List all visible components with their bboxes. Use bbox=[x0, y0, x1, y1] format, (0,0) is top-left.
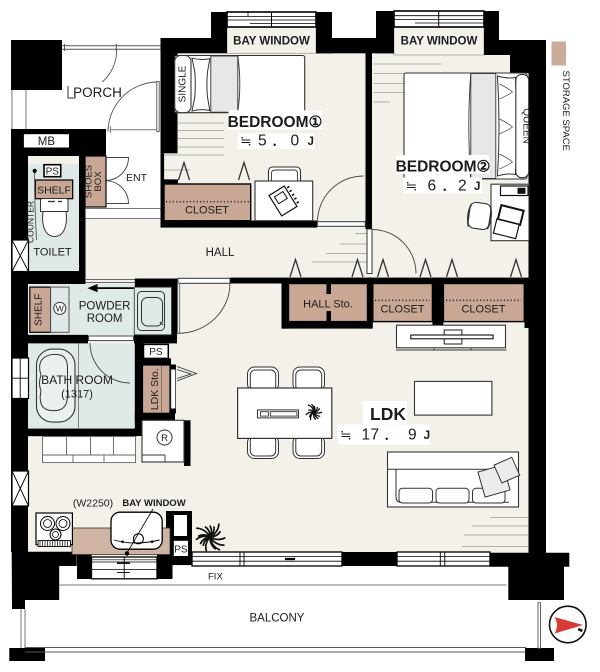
svg-text:MB: MB bbox=[38, 136, 56, 148]
svg-text:FIX: FIX bbox=[208, 572, 223, 583]
svg-text:．: ． bbox=[441, 178, 457, 195]
svg-text:CLOSET: CLOSET bbox=[185, 205, 229, 217]
svg-text:POWDER: POWDER bbox=[79, 301, 131, 313]
svg-text:≒: ≒ bbox=[406, 178, 418, 194]
svg-text:SHELF: SHELF bbox=[34, 294, 45, 326]
svg-text:BAY WINDOW: BAY WINDOW bbox=[122, 498, 185, 509]
svg-text:2: 2 bbox=[458, 178, 467, 195]
svg-text:J: J bbox=[308, 136, 314, 148]
svg-text:6: 6 bbox=[428, 178, 437, 195]
svg-text:HALL: HALL bbox=[206, 247, 235, 259]
svg-text:PS: PS bbox=[46, 167, 60, 178]
svg-text:PORCH: PORCH bbox=[73, 85, 122, 100]
svg-text:QUEEN: QUEEN bbox=[521, 108, 532, 144]
svg-text:7: 7 bbox=[371, 427, 380, 444]
svg-text:ENT: ENT bbox=[126, 172, 148, 184]
svg-text:≒: ≒ bbox=[240, 133, 252, 149]
svg-text:BAY WINDOW: BAY WINDOW bbox=[233, 36, 310, 48]
svg-text:J: J bbox=[424, 428, 431, 442]
svg-text:COUNTER: COUNTER bbox=[26, 201, 36, 243]
svg-text:0: 0 bbox=[291, 133, 300, 150]
svg-text:LDK: LDK bbox=[370, 404, 406, 424]
svg-text:PS: PS bbox=[149, 347, 163, 358]
svg-text:BATH ROOM: BATH ROOM bbox=[41, 373, 113, 387]
svg-text:CLOSET: CLOSET bbox=[461, 304, 505, 316]
svg-text:(1317): (1317) bbox=[61, 389, 93, 401]
svg-text:．: ． bbox=[383, 427, 399, 444]
svg-text:STORAGE SPACE: STORAGE SPACE bbox=[560, 71, 571, 151]
svg-text:PS: PS bbox=[174, 545, 188, 556]
svg-text:R: R bbox=[161, 433, 168, 444]
svg-text:(W2250): (W2250) bbox=[73, 498, 113, 510]
svg-text:5: 5 bbox=[258, 133, 267, 150]
svg-text:SINGLE: SINGLE bbox=[178, 65, 189, 102]
svg-text:≒: ≒ bbox=[340, 427, 352, 443]
svg-text:．: ． bbox=[271, 133, 287, 150]
svg-text:CLOSET: CLOSET bbox=[380, 304, 424, 316]
svg-text:BAY WINDOW: BAY WINDOW bbox=[401, 36, 478, 48]
svg-text:TOILET: TOILET bbox=[33, 247, 72, 259]
svg-text:W: W bbox=[56, 304, 64, 314]
svg-text:1: 1 bbox=[362, 427, 371, 444]
svg-text:HALL Sto.: HALL Sto. bbox=[303, 299, 353, 311]
svg-text:9: 9 bbox=[408, 427, 417, 444]
svg-text:LDK Sto.: LDK Sto. bbox=[149, 368, 161, 410]
svg-text:BALCONY: BALCONY bbox=[250, 613, 305, 625]
svg-text:J: J bbox=[474, 181, 480, 193]
svg-text:BOX: BOX bbox=[93, 171, 104, 192]
svg-text:SHELF: SHELF bbox=[37, 185, 71, 197]
svg-text:BEDROOM①: BEDROOM① bbox=[228, 114, 323, 131]
svg-text:BEDROOM②: BEDROOM② bbox=[396, 158, 491, 175]
svg-text:ROOM: ROOM bbox=[87, 313, 123, 325]
